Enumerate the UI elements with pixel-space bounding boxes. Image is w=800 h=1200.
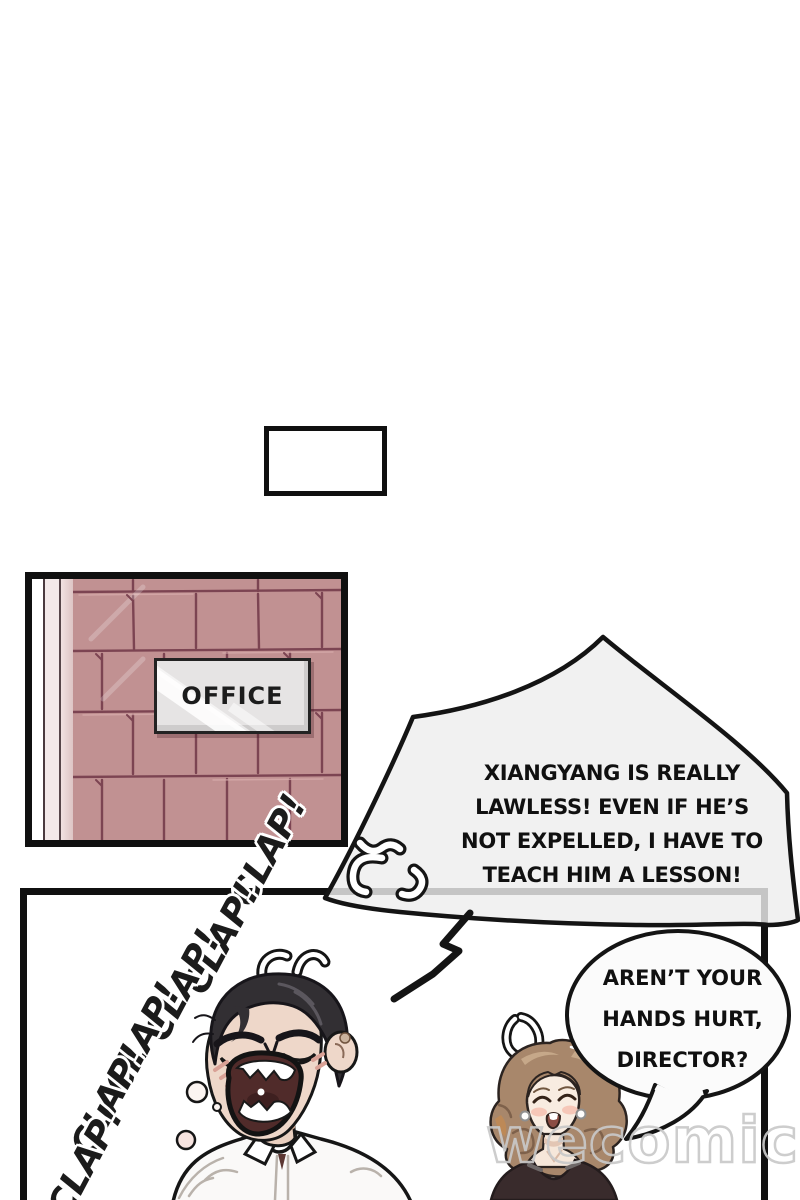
dialogue-line: LAWLESS! EVEN IF HE’S: [440, 790, 784, 824]
door-edge: [32, 579, 43, 840]
empty-panel: [264, 426, 387, 496]
office-sign-label: OFFICE: [181, 682, 283, 710]
comic-page: OFFICE: [0, 0, 800, 1200]
office-sign: OFFICE: [154, 658, 311, 734]
door-frame-strip: [45, 579, 59, 840]
dialogue-line: AREN’T YOUR: [595, 958, 770, 999]
assistant-dialogue: AREN’T YOUR HANDS HURT, DIRECTOR?: [595, 958, 770, 1081]
dialogue-line: NOT EXPELLED, I HAVE TO: [440, 824, 784, 858]
dialogue-line: TEACH HIM A LESSON!: [440, 858, 784, 892]
watermark: wecomics: [486, 1104, 800, 1177]
wall-edge-shading: [61, 579, 73, 840]
dialogue-line: XIANGYANG IS REALLY: [440, 756, 784, 790]
zigzag-bubble-tail: [394, 913, 470, 999]
dialogue-line: DIRECTOR?: [595, 1040, 770, 1081]
director-dialogue: XIANGYANG IS REALLY LAWLESS! EVEN IF HE’…: [440, 756, 784, 892]
man-ear: [325, 1032, 357, 1072]
dialogue-line: HANDS HURT,: [595, 999, 770, 1040]
